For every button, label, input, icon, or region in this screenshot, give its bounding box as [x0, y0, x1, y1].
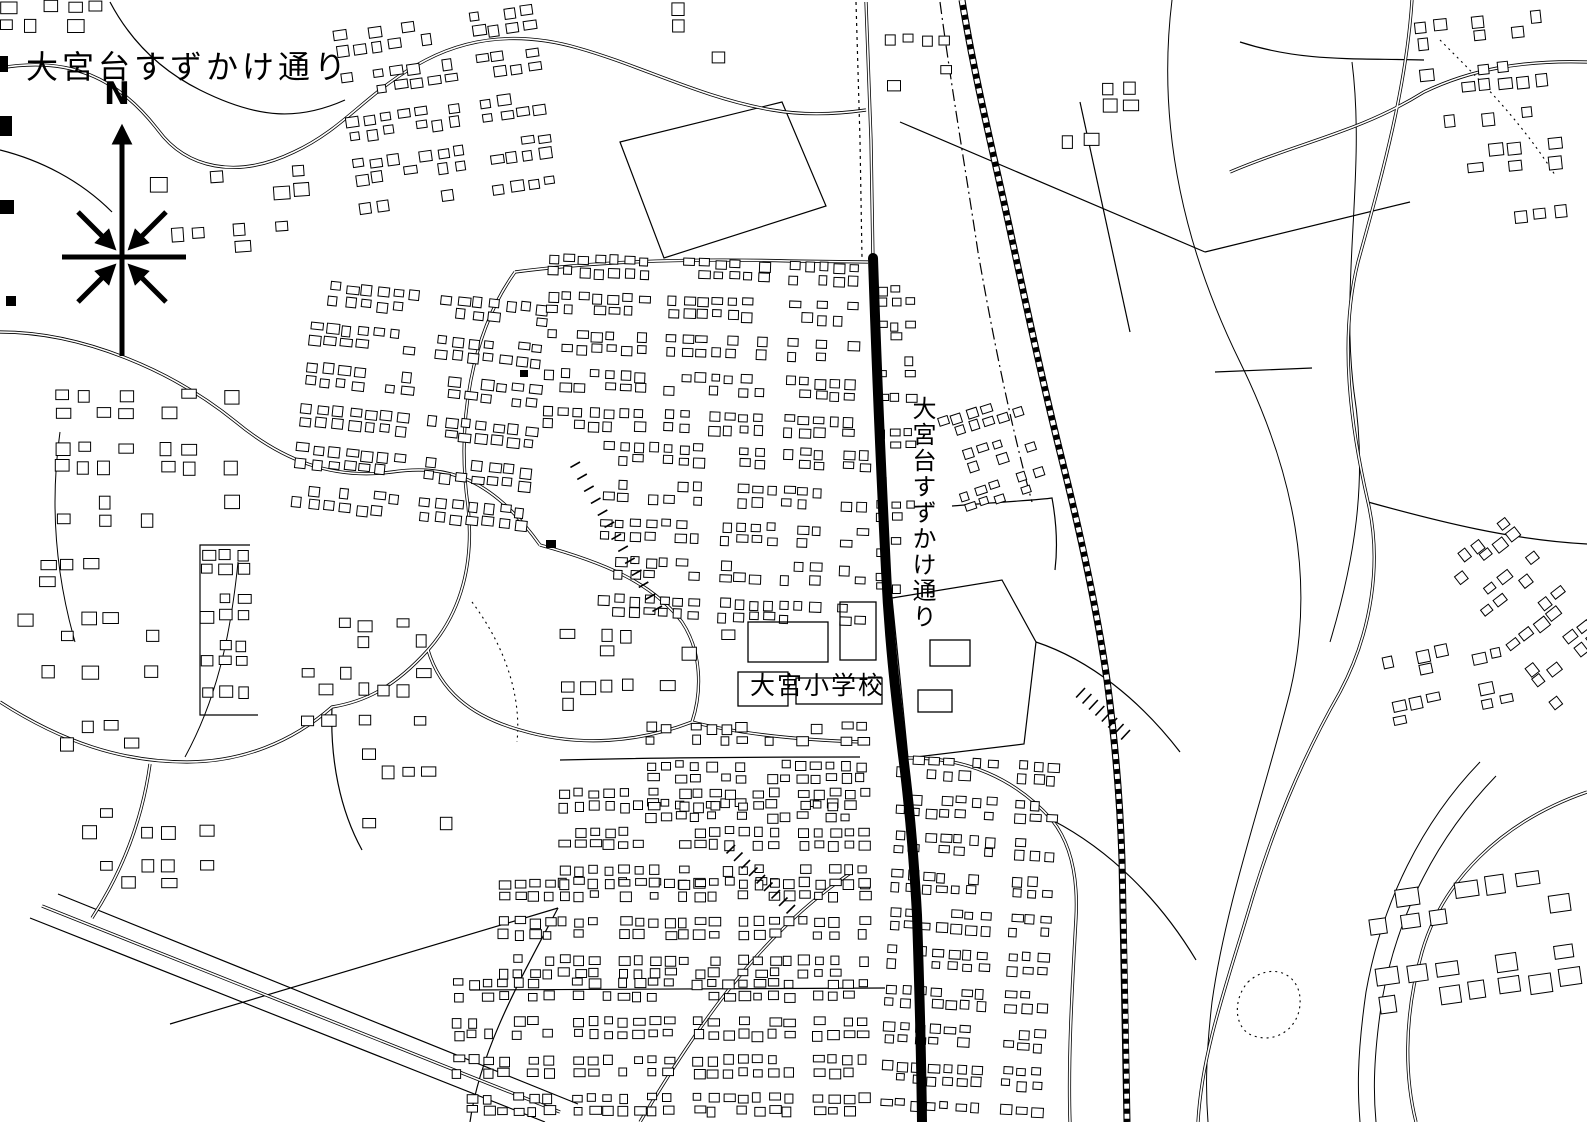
road-name-label-vertical: 大宮台すずかけ通り — [910, 396, 940, 630]
building-cluster — [558, 788, 870, 889]
building-cluster — [1414, 9, 1551, 133]
building-cluster — [83, 809, 215, 888]
compass-north-label: N — [104, 76, 130, 112]
map-viewport: 大宮台すずかけ通り N 大宮台すずかけ通り 大宮小学校 — [0, 0, 1587, 1122]
building-cluster — [150, 178, 167, 193]
school-name-label: 大宮小学校 — [750, 666, 885, 702]
building-cluster — [672, 3, 725, 63]
building-cluster — [168, 165, 313, 257]
building-cluster — [55, 389, 239, 527]
building-cluster — [498, 878, 871, 979]
building-cluster — [18, 559, 159, 752]
compass-rose — [62, 130, 186, 356]
building-cluster — [302, 618, 432, 726]
building-cluster — [542, 252, 862, 441]
building-cluster — [1062, 82, 1138, 148]
map-canvas — [0, 0, 1587, 1122]
building-cluster — [560, 629, 735, 710]
building-cluster — [333, 3, 559, 215]
building-cluster — [1380, 632, 1513, 728]
building-cluster — [200, 550, 251, 699]
building-cluster — [885, 34, 951, 91]
building-cluster — [1466, 137, 1570, 228]
building-cluster — [363, 749, 452, 830]
building-cluster — [1, 0, 102, 32]
building-cluster — [452, 978, 870, 1117]
contour-lines — [55, 0, 1555, 1122]
building-cluster — [1442, 516, 1587, 710]
building-cluster — [935, 392, 1049, 513]
map-title: 大宮台すずかけ通り — [26, 42, 350, 88]
building-cluster — [290, 279, 551, 533]
building-cluster — [597, 440, 871, 628]
